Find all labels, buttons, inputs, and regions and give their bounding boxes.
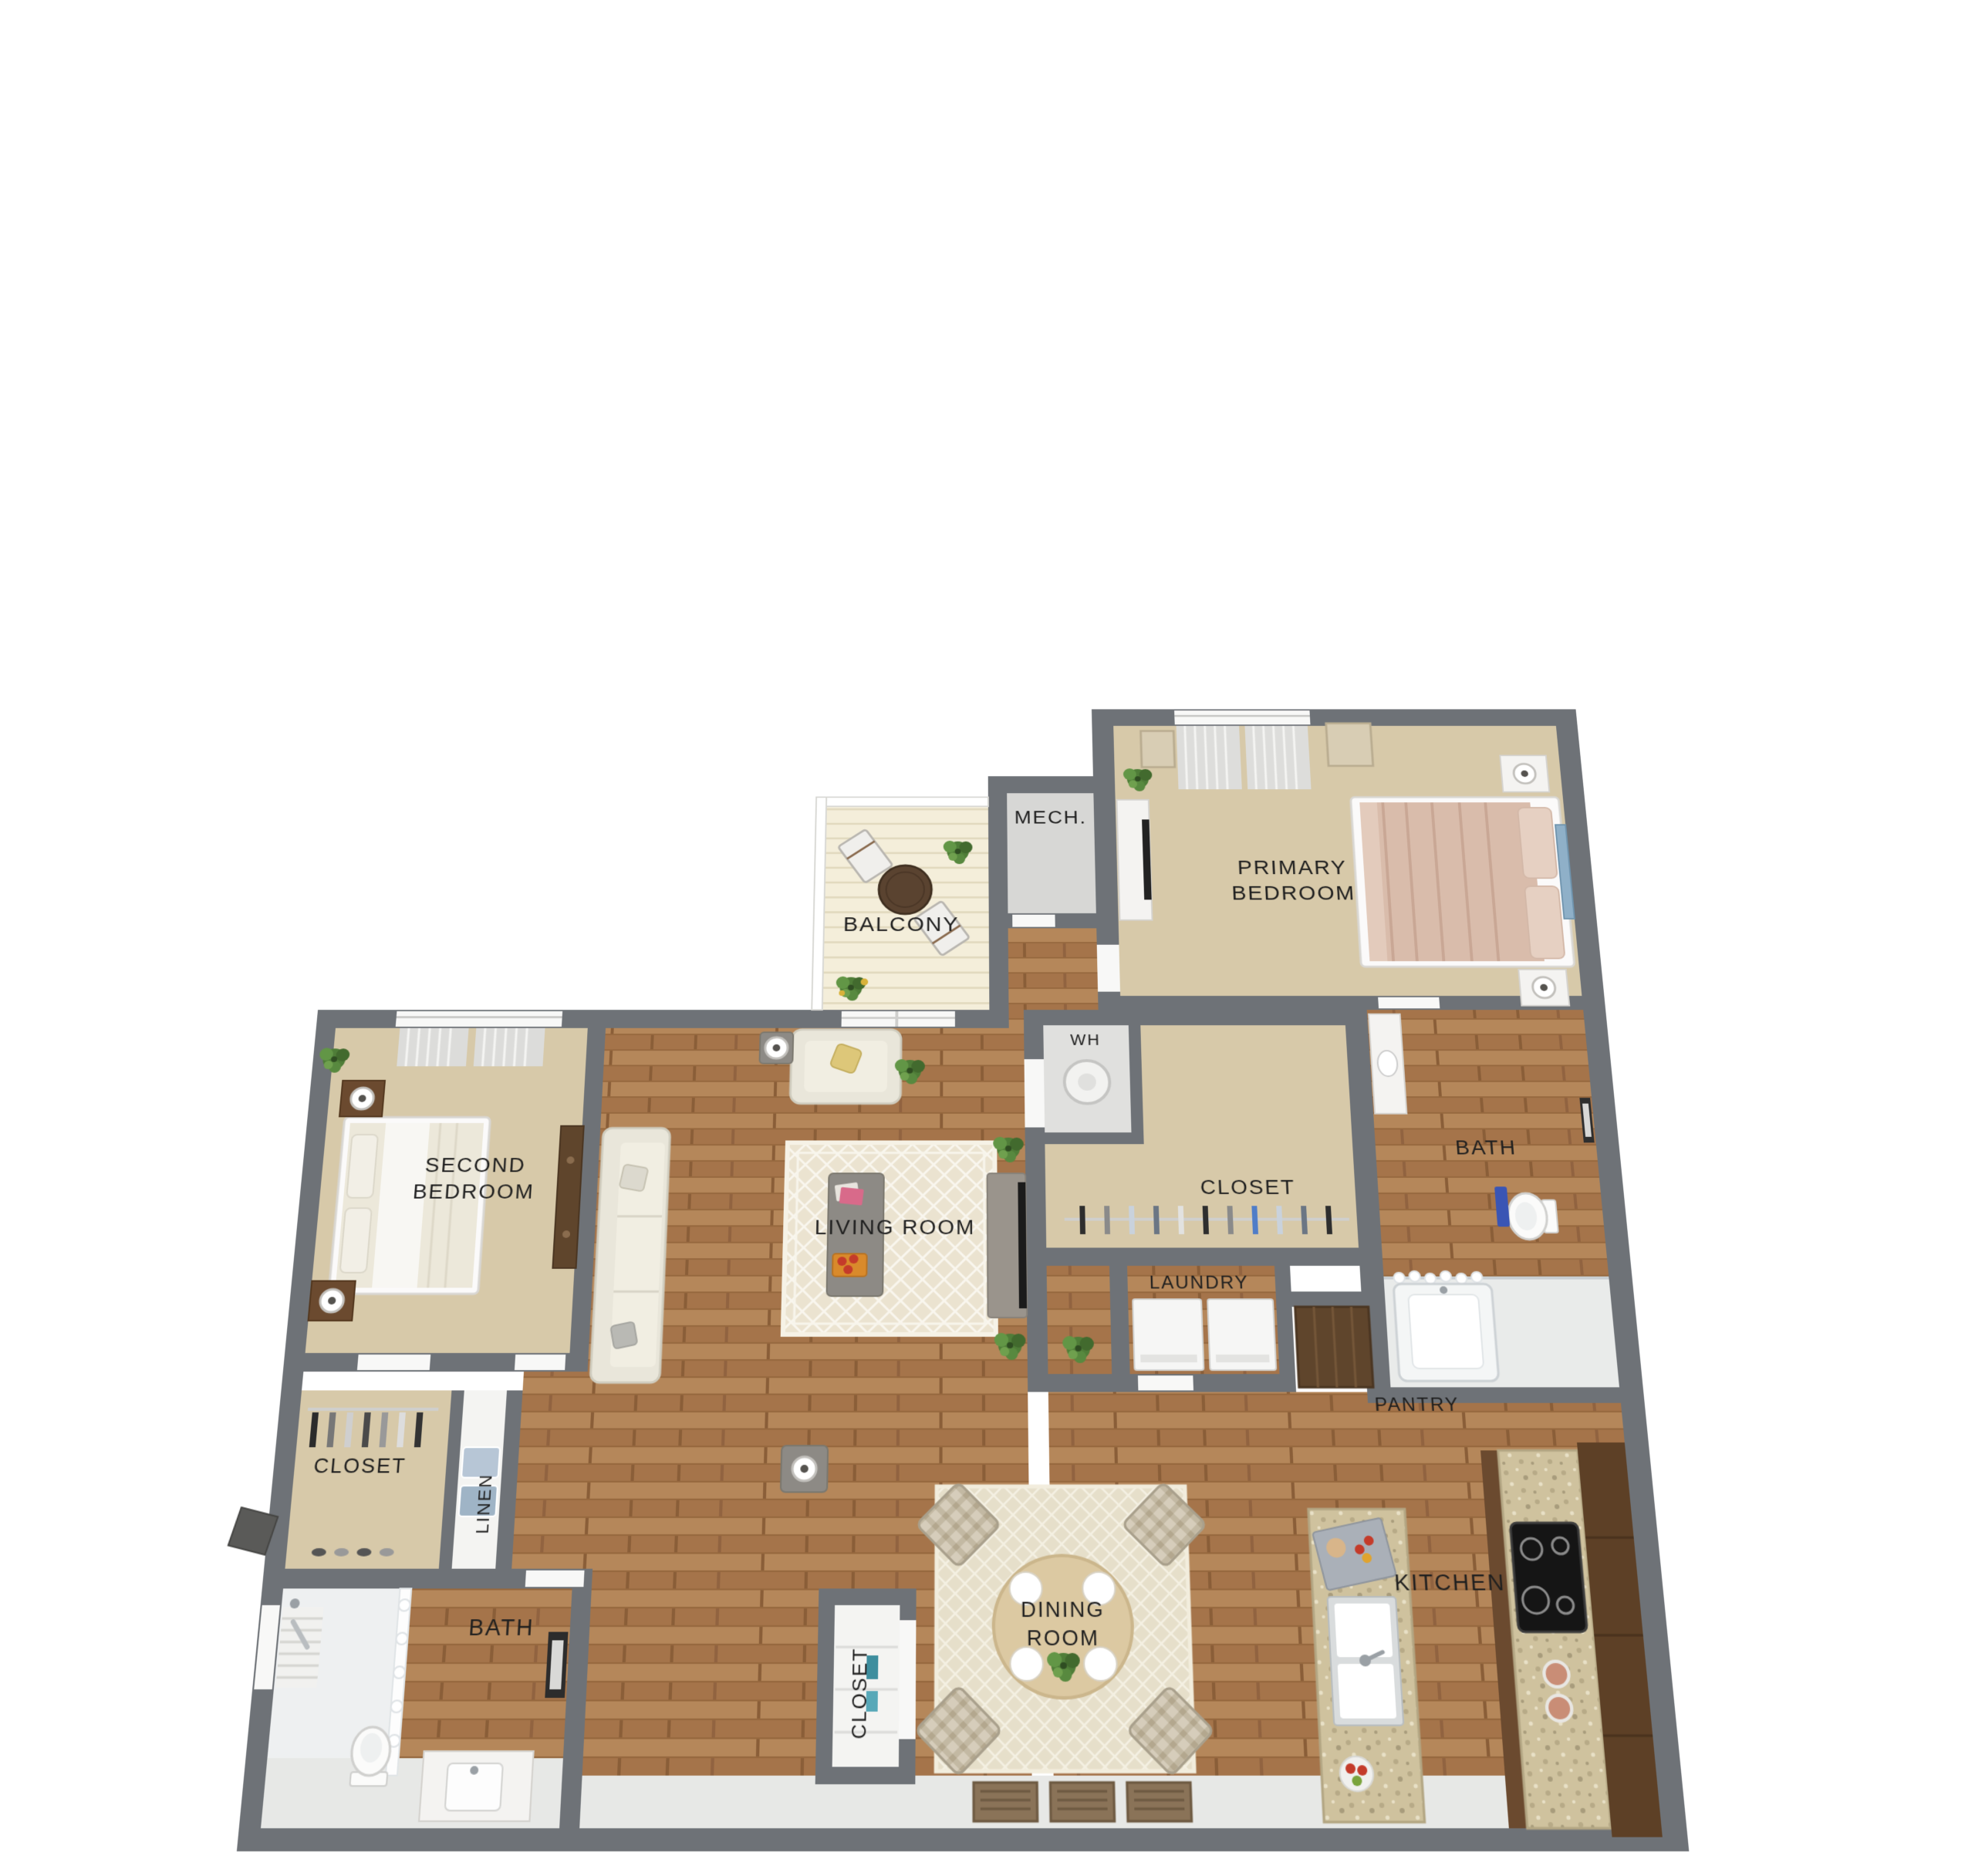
room-label-balcony: BALCONY	[843, 913, 959, 936]
entry-tile-strip	[579, 1776, 1662, 1828]
room-label-primary-bath: BATH	[1454, 1135, 1518, 1159]
doormat	[974, 1783, 1038, 1821]
room-label-mech: MECH.	[1015, 807, 1087, 828]
laundry-hall-floor	[1047, 1266, 1112, 1392]
toilet	[1507, 1193, 1559, 1240]
balcony-slider-door	[842, 1011, 955, 1027]
place-setting	[1010, 1647, 1043, 1681]
second-bedroom-door	[515, 1355, 565, 1370]
water-heater	[1064, 1061, 1110, 1104]
room-label-second-bedroom-line2: BEDROOM	[412, 1179, 535, 1203]
second-closet-door	[357, 1355, 430, 1370]
sofa-pillow	[610, 1321, 637, 1349]
washer	[1133, 1299, 1204, 1370]
pot	[1546, 1695, 1573, 1721]
second-nightstand	[309, 1281, 356, 1321]
room-label-second-closet: CLOSET	[312, 1455, 407, 1478]
armchair	[790, 1030, 901, 1104]
balcony-railing-top	[816, 797, 988, 806]
place-setting	[1084, 1647, 1117, 1681]
doormat	[1127, 1783, 1192, 1821]
floor-plan: MECH. BALCONY PRIMARY BEDROOM WH CLOSET …	[105, 697, 1801, 1873]
room-label-dining-room-line2: ROOM	[1027, 1627, 1100, 1651]
tv	[1018, 1183, 1027, 1309]
cooktop	[1510, 1523, 1587, 1631]
room-label-primary-closet: CLOSET	[1200, 1176, 1295, 1199]
sofa	[590, 1128, 670, 1382]
sofa-pillow	[619, 1164, 648, 1191]
doormats	[974, 1783, 1192, 1821]
room-label-pantry: PANTRY	[1374, 1393, 1460, 1415]
window-blinds	[275, 1607, 324, 1688]
room-label-kitchen: KITCHEN	[1393, 1569, 1506, 1595]
side-table	[759, 1032, 793, 1063]
primary-closet-door	[1025, 1059, 1045, 1127]
decor-tray	[832, 1253, 867, 1276]
room-label-entry-closet: CLOSET	[847, 1647, 871, 1739]
room-label-second-bath: BATH	[468, 1614, 535, 1640]
magazine	[839, 1187, 864, 1206]
primary-dresser	[1117, 800, 1153, 920]
second-bath-door	[525, 1571, 585, 1587]
bath-wall-art	[545, 1632, 568, 1699]
room-label-laundry: LAUNDRY	[1149, 1272, 1249, 1293]
linen-hall-floor	[511, 1372, 587, 1568]
tv-console	[987, 1173, 1028, 1318]
room-label-primary-bedroom-line2: BEDROOM	[1231, 882, 1356, 905]
second-bed	[329, 1117, 491, 1294]
second-nightstand	[339, 1081, 385, 1117]
wall-art-dream	[1141, 731, 1175, 768]
bath-vanity	[419, 1751, 534, 1821]
pantry-door	[1295, 1307, 1373, 1387]
primary-bedroom-door	[1097, 945, 1120, 992]
bathtub	[1393, 1284, 1499, 1382]
primary-bedroom-window	[1174, 710, 1310, 724]
island-sink	[1328, 1597, 1404, 1726]
dryer	[1207, 1299, 1276, 1370]
room-label-primary-bedroom-line1: PRIMARY	[1237, 856, 1348, 879]
primary-nightstand	[1500, 755, 1549, 791]
second-bedroom-window	[396, 1011, 562, 1027]
room-label-dining-room-line1: DINING	[1021, 1598, 1105, 1622]
primary-bed	[1351, 797, 1575, 967]
room-label-wh: WH	[1070, 1031, 1101, 1048]
wall-art-believe	[1326, 724, 1373, 766]
bath-vanity	[1369, 1014, 1406, 1114]
primary-nightstand	[1518, 970, 1569, 1006]
room-label-second-bedroom-line1: SECOND	[424, 1153, 527, 1176]
room-label-linen: LINEN	[473, 1473, 496, 1534]
side-table	[781, 1446, 828, 1492]
entry-closet-door	[899, 1620, 916, 1739]
room-label-living-room: LIVING ROOM	[815, 1215, 976, 1239]
mech-door	[1012, 915, 1055, 927]
pot	[1543, 1662, 1570, 1687]
doormat	[1050, 1783, 1114, 1821]
kitchen-island	[1308, 1509, 1425, 1822]
laundry-door	[1138, 1375, 1193, 1390]
floor-plan-canvas: MECH. BALCONY PRIMARY BEDROOM WH CLOSET …	[105, 697, 1801, 1873]
primary-bath-door	[1378, 997, 1440, 1008]
